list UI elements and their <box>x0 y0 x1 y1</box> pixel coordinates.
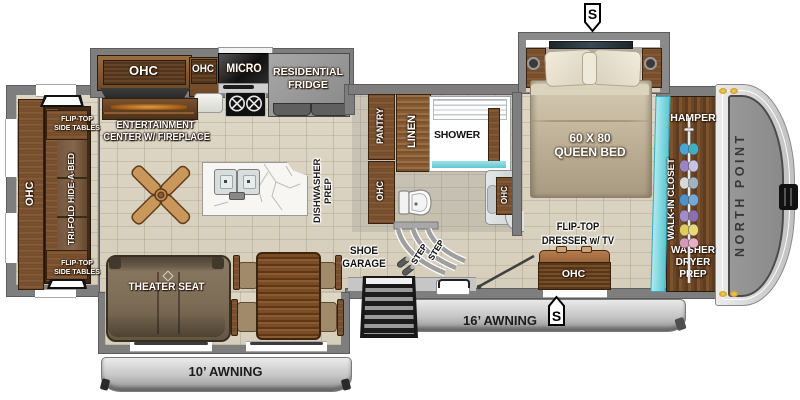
svg-text:S: S <box>588 6 597 22</box>
